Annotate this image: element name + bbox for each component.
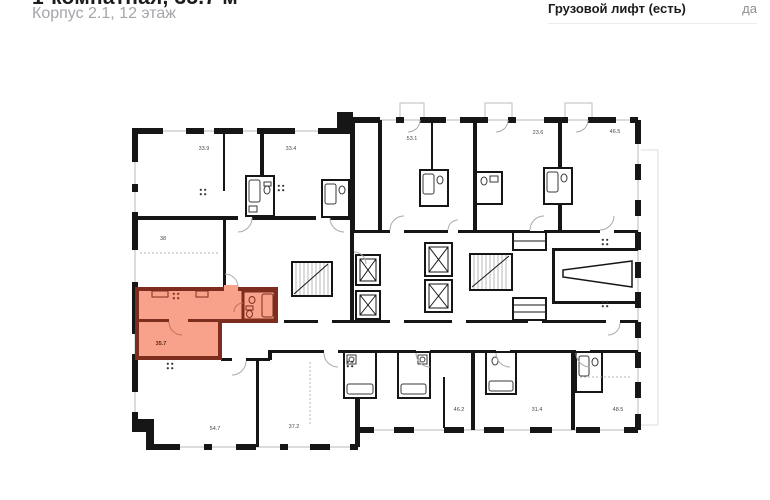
area-label: 53.1 xyxy=(407,136,418,142)
area-label: 31.4 xyxy=(532,407,543,413)
area-label: 33.9 xyxy=(199,146,210,152)
selected-apartment[interactable] xyxy=(137,285,276,358)
area-label: 54.7 xyxy=(210,426,221,432)
ramp-wedge xyxy=(563,261,632,287)
service-rooms xyxy=(513,232,546,320)
area-label: 23.6 xyxy=(533,130,544,136)
stairwell-left xyxy=(292,262,332,296)
area-label: 35.7 xyxy=(156,341,167,347)
exterior-walls xyxy=(132,112,641,450)
area-label: 38 xyxy=(160,236,166,242)
area-label: 33.4 xyxy=(286,146,297,152)
area-label: 46.5 xyxy=(610,129,621,135)
apartment-entrance-gap xyxy=(224,285,238,292)
floor-plan: 33.933.453.123.646.53835.754.737.246.231… xyxy=(0,0,770,500)
area-label: 37.2 xyxy=(289,424,300,430)
area-label: 48.5 xyxy=(613,407,624,413)
area-label: 46.2 xyxy=(454,407,465,413)
balcony-rail xyxy=(641,150,658,425)
elevator-shafts xyxy=(356,243,452,319)
stairwell-right xyxy=(470,254,512,290)
